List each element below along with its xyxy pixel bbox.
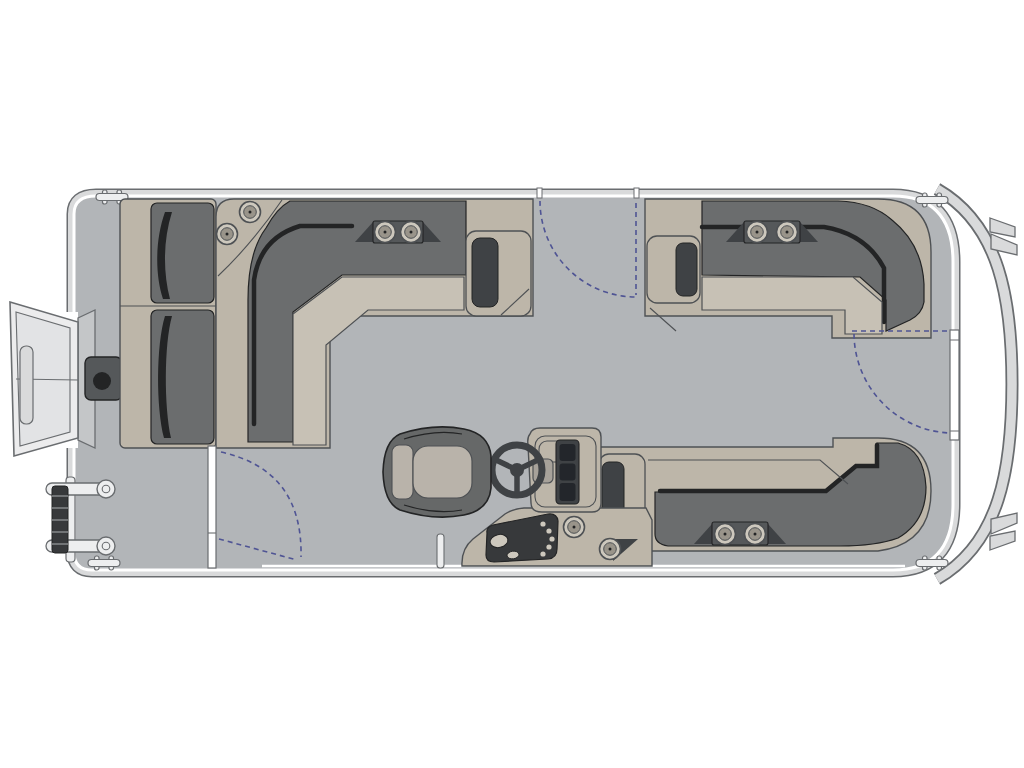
switch-button	[549, 536, 554, 541]
ramp-handle	[20, 346, 33, 424]
stern-ramp	[10, 302, 95, 456]
switch-button	[540, 551, 545, 556]
cup-holder-icon	[715, 524, 736, 545]
cup-holder-icon	[745, 524, 766, 545]
cup-holder-icon	[401, 222, 422, 243]
bow-fin	[990, 218, 1015, 237]
switch-button	[546, 544, 551, 549]
gauge-screen	[560, 483, 576, 501]
gate-door	[950, 330, 959, 440]
armrest-inset	[676, 243, 697, 296]
chair-back-pad	[392, 445, 413, 499]
floorplan-canvas	[0, 0, 1024, 768]
gate-door	[208, 446, 216, 568]
cup-holder-icon	[747, 222, 768, 243]
armrest-inset	[472, 238, 498, 307]
gate-post	[537, 188, 542, 198]
cup-holder-icon	[600, 539, 621, 560]
gauge-screen	[560, 464, 576, 481]
cup-holder-icon	[777, 222, 798, 243]
gate-post	[634, 188, 639, 198]
ladder-mount-ring	[97, 480, 115, 498]
bow-fin	[990, 531, 1015, 550]
captains-chair	[383, 427, 491, 517]
tow-pylon	[437, 534, 444, 568]
switch-button	[546, 528, 551, 533]
latch-socket	[93, 372, 111, 390]
gate-latch-plate	[85, 357, 122, 400]
pontoon-floorplan-page	[0, 0, 1024, 768]
cup-holder-icon	[240, 202, 261, 223]
gauge-screen	[560, 444, 576, 461]
cup-holder-icon	[375, 222, 396, 243]
left-side-bench	[120, 199, 216, 448]
ladder-mount-ring	[97, 537, 115, 555]
wheel-hub	[510, 463, 524, 477]
cup-holder-icon	[564, 517, 585, 538]
chair-seat-cushion	[413, 446, 472, 498]
cup-holder-icon	[217, 224, 238, 245]
switch-button	[540, 521, 545, 526]
